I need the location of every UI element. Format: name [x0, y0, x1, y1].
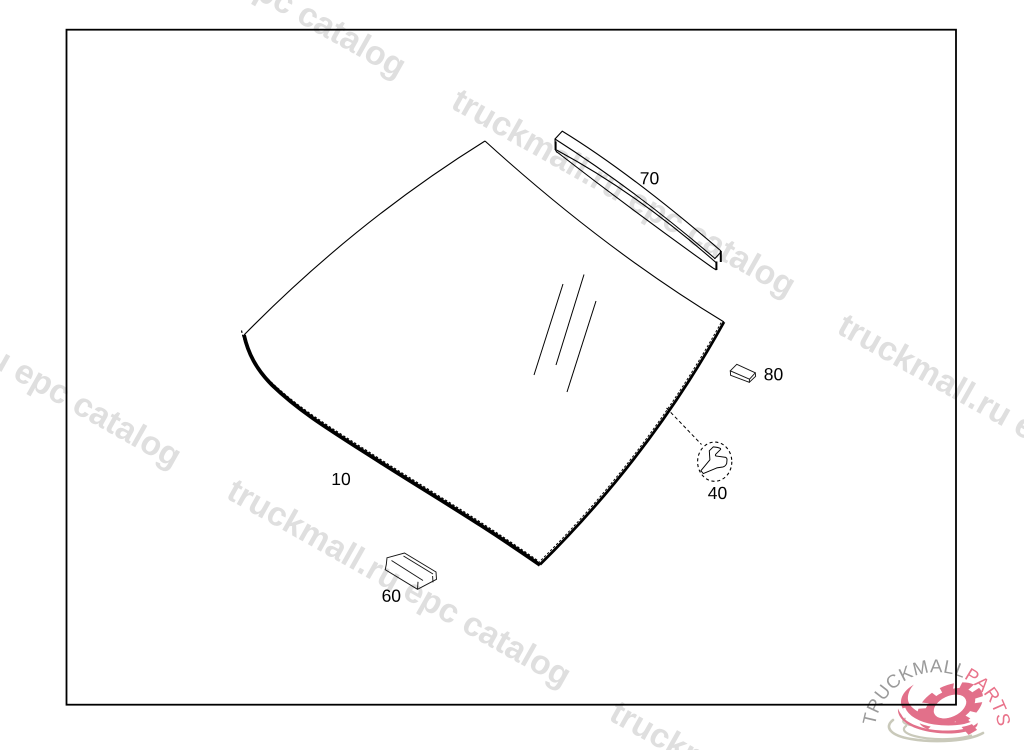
svg-text:10: 10 [331, 469, 351, 489]
svg-text:70: 70 [640, 168, 660, 188]
svg-text:60: 60 [382, 586, 402, 606]
svg-text:40: 40 [708, 483, 728, 503]
svg-text:80: 80 [764, 364, 784, 384]
